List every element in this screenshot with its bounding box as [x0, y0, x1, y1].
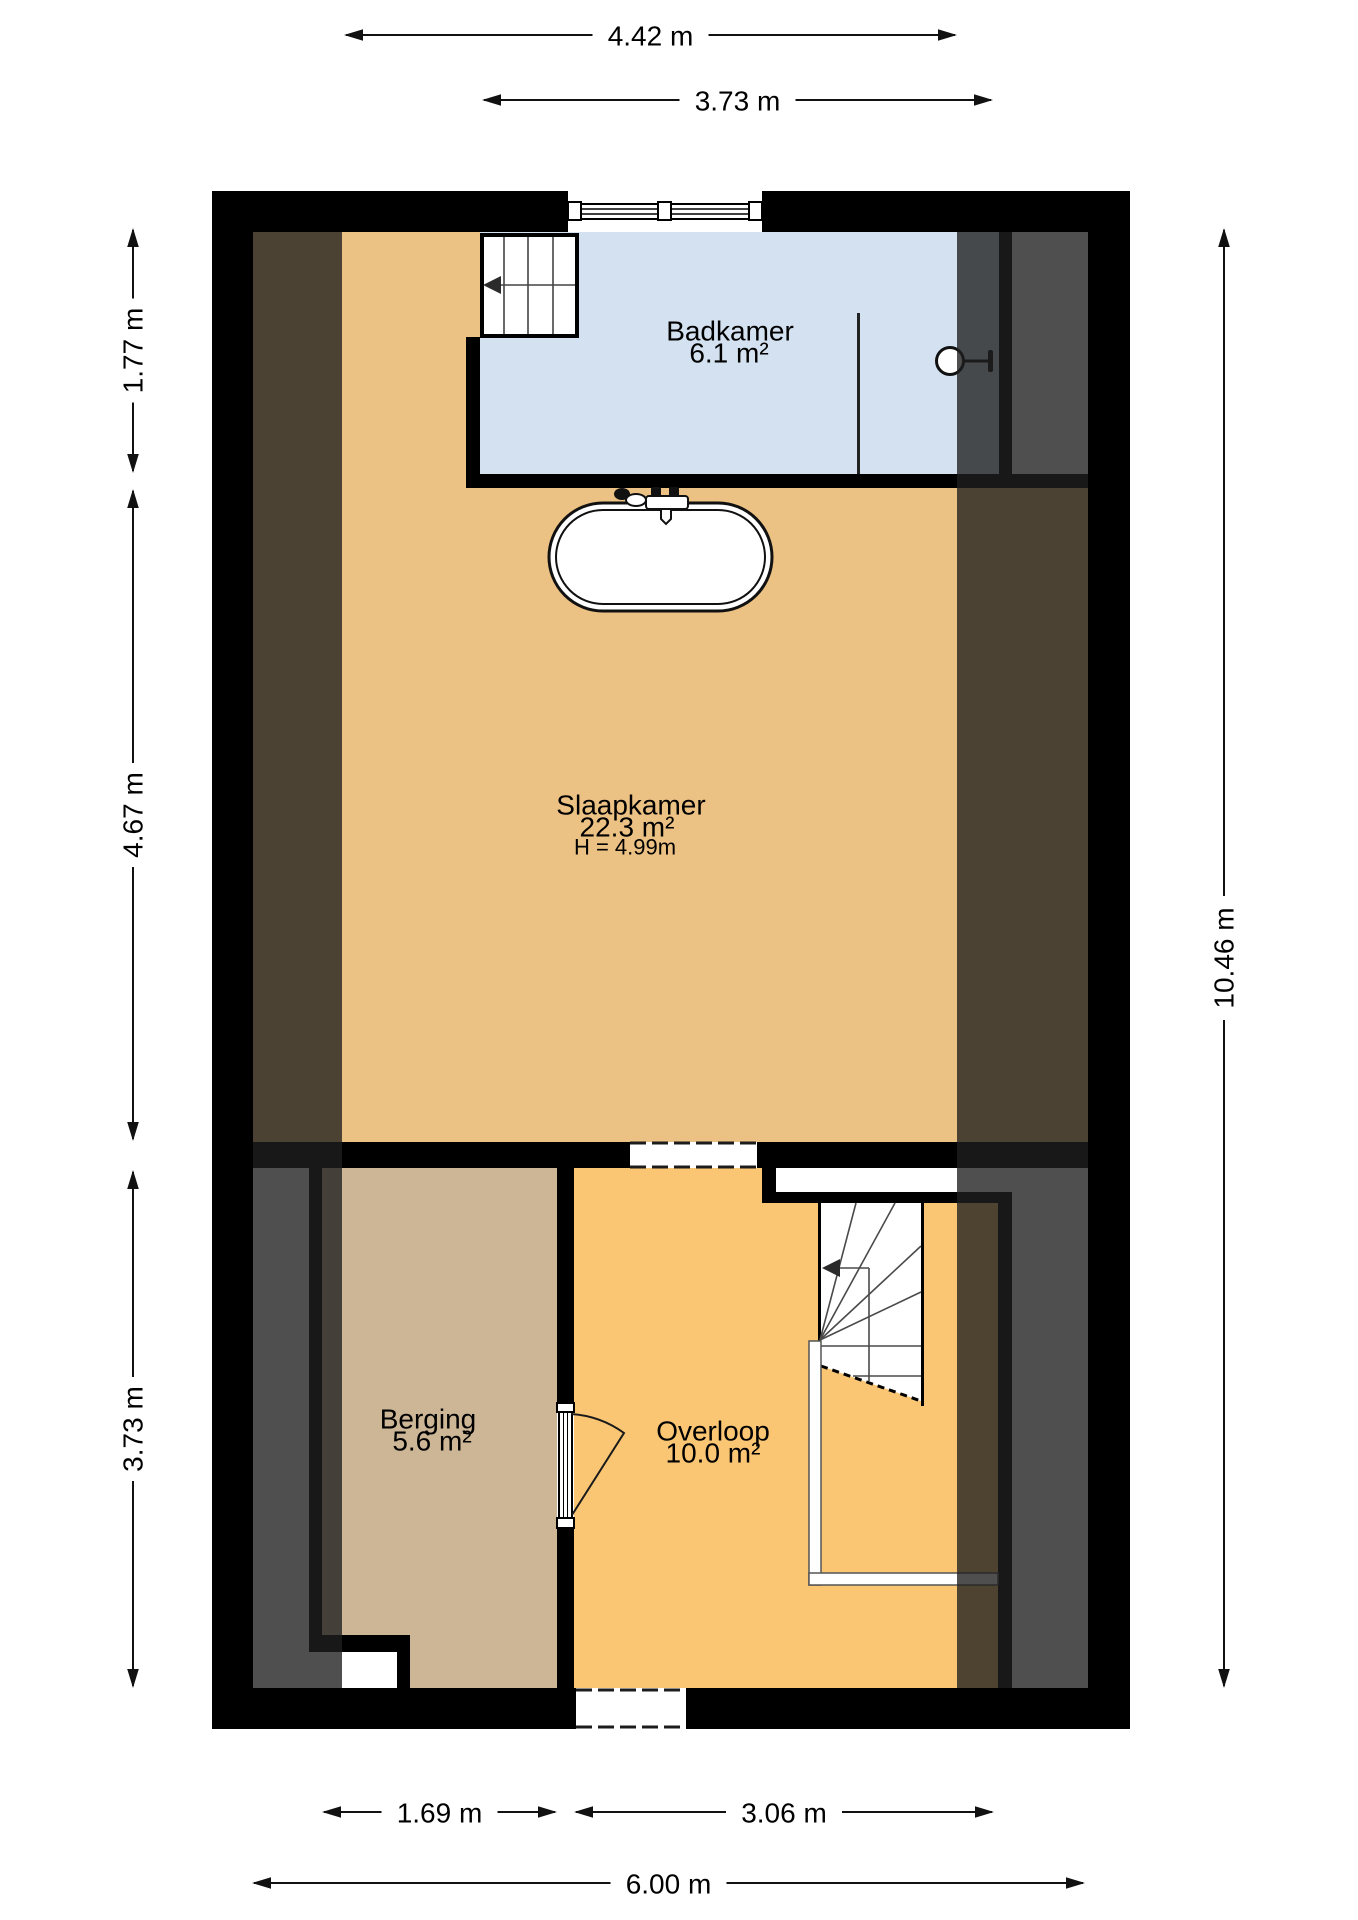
svg-text:6.1 m²: 6.1 m²: [689, 338, 768, 369]
svg-text:1.69 m: 1.69 m: [397, 1798, 483, 1829]
svg-text:3.73 m: 3.73 m: [695, 86, 781, 117]
svg-text:3.06 m: 3.06 m: [741, 1798, 827, 1829]
svg-text:1.77 m: 1.77 m: [118, 308, 149, 394]
svg-text:H = 4.99m: H = 4.99m: [574, 835, 676, 860]
svg-text:10.0 m²: 10.0 m²: [666, 1438, 761, 1469]
svg-text:4.42 m: 4.42 m: [608, 21, 694, 52]
svg-text:6.00 m: 6.00 m: [626, 1869, 712, 1900]
svg-text:5.6 m²: 5.6 m²: [392, 1426, 471, 1457]
svg-text:10.46 m: 10.46 m: [1209, 907, 1240, 1008]
svg-text:3.73 m: 3.73 m: [118, 1386, 149, 1472]
svg-text:4.67 m: 4.67 m: [118, 772, 149, 858]
